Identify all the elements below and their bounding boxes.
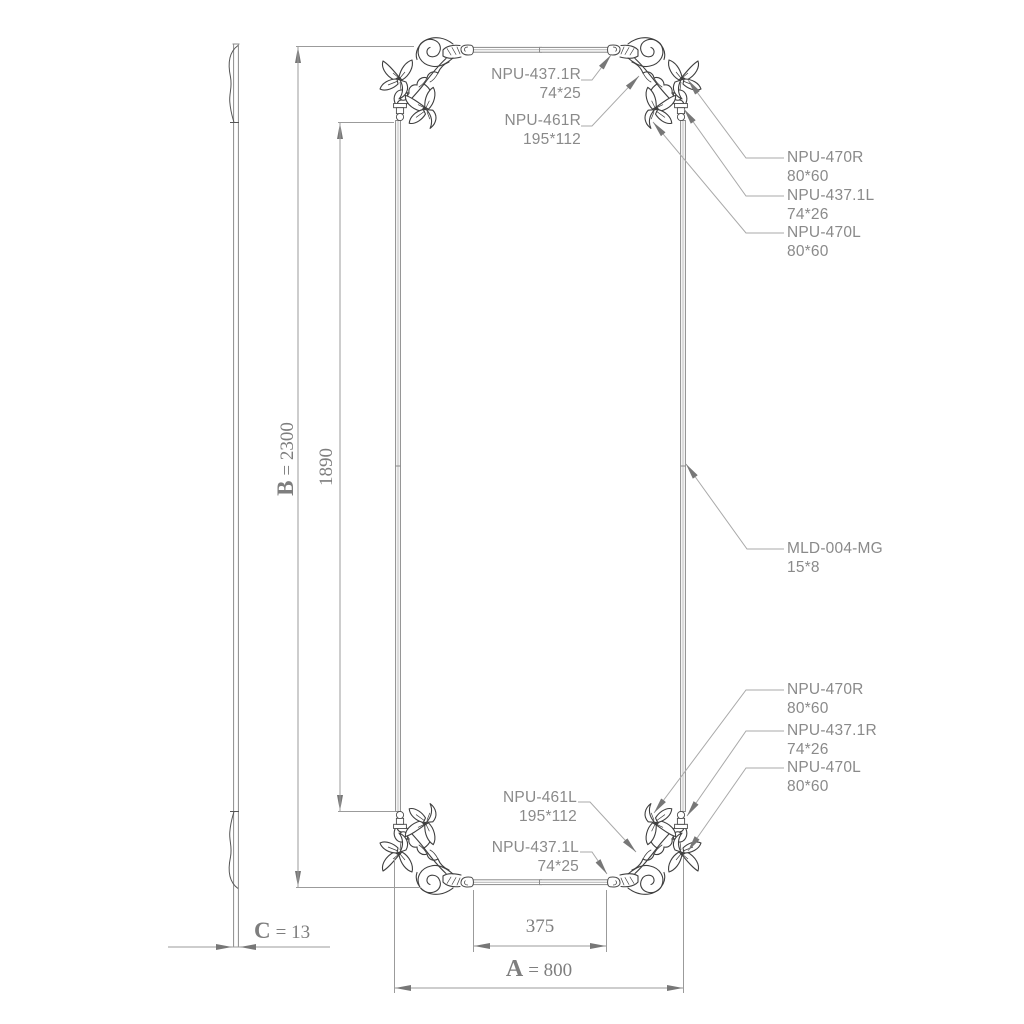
callout-top-npu-437-1r: NPU-437.1R 74*25 (431, 66, 581, 103)
part-number: NPU-437.1L (429, 839, 579, 858)
dimension-value: = 13 (276, 922, 310, 943)
corner-ornament-bottom-right (540, 466, 702, 894)
part-size: 80*60 (787, 168, 864, 187)
callout-top-npu-461r: NPU-461R 195*112 (431, 112, 581, 149)
part-number: NPU-470R (787, 149, 864, 168)
part-number: NPU-461L (427, 789, 577, 808)
dimension-overall-width: A= 800 (439, 956, 639, 983)
part-number: NPU-437.1L (787, 187, 874, 206)
callout-lower-right-npu-470r: NPU-470R 80*60 (787, 681, 864, 718)
part-size: 80*60 (787, 700, 864, 719)
part-size: 74*25 (431, 85, 581, 104)
part-size: 195*112 (427, 808, 577, 827)
part-size: 74*26 (787, 206, 874, 225)
dimension-value: = 800 (528, 960, 572, 981)
part-size: 74*25 (429, 858, 579, 877)
dimension-letter: C (254, 918, 271, 943)
dimension-value: = 2300 (277, 422, 298, 475)
part-number: NPU-470R (787, 681, 864, 700)
part-size: 15*8 (787, 559, 883, 578)
callout-bottom-npu-461l: NPU-461L 195*112 (427, 789, 577, 826)
callout-upper-right-npu-470l: NPU-470L 80*60 (787, 224, 861, 261)
corner-ornament-bottom-left (380, 466, 542, 894)
part-number: NPU-437.1R (787, 722, 877, 741)
part-number: NPU-437.1R (431, 66, 581, 85)
part-size: 195*112 (431, 131, 581, 150)
callout-upper-right-npu-470r: NPU-470R 80*60 (787, 149, 864, 186)
part-size: 74*26 (787, 741, 877, 760)
callout-upper-right-npu-437-1l: NPU-437.1L 74*26 (787, 187, 874, 224)
dimension-bottom-molding-width: 375 (490, 916, 590, 938)
dimension-value: 1890 (316, 448, 337, 486)
side-profile-view (229, 44, 239, 947)
part-size: 80*60 (787, 778, 861, 797)
callout-bottom-npu-437-1l: NPU-437.1L 74*25 (429, 839, 579, 876)
drawing-sheet: NPU-437.1R 74*25 NPU-461R 195*112 NPU-47… (0, 0, 1024, 1024)
part-number: NPU-461R (431, 112, 581, 131)
dimension-letter: B (273, 481, 298, 496)
part-size: 80*60 (787, 243, 861, 262)
callout-mld-004-mg: MLD-004-MG 15*8 (787, 540, 883, 577)
dimension-molding-height: 1890 (316, 407, 338, 527)
dimension-overall-height: B= 2300 (273, 389, 299, 529)
part-number: NPU-470L (787, 759, 861, 778)
callout-lower-right-npu-470l: NPU-470L 80*60 (787, 759, 861, 796)
part-number: NPU-470L (787, 224, 861, 243)
panel-frame (380, 38, 701, 895)
dimension-value: 375 (526, 916, 555, 937)
part-number: MLD-004-MG (787, 540, 883, 559)
dimension-letter: A (506, 956, 523, 982)
callout-lower-right-npu-437-1r: NPU-437.1R 74*26 (787, 722, 877, 759)
dimension-thickness: C= 13 (254, 918, 310, 944)
